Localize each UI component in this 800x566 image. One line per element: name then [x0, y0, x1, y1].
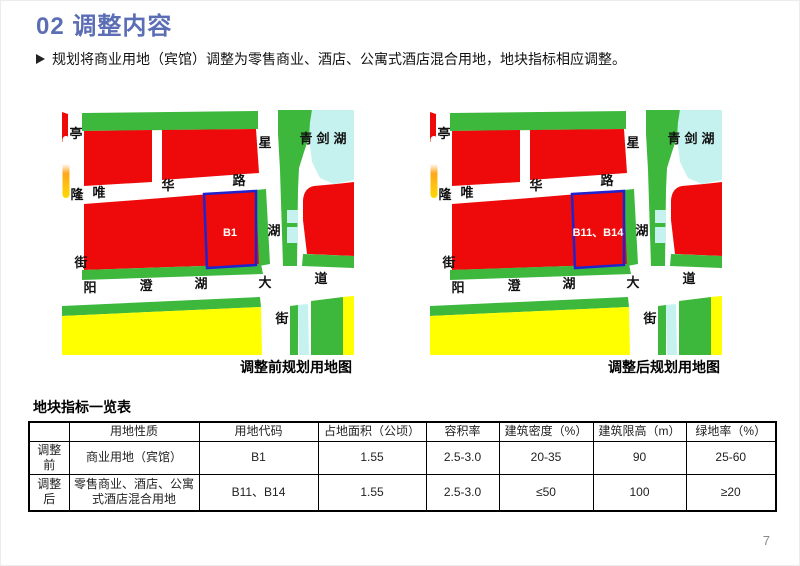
road-label: 阳 [451, 280, 464, 295]
table-cell: 90 [593, 441, 686, 474]
road-label: 隆 [438, 187, 452, 202]
row-label-cell: 调整后 [29, 474, 69, 511]
bullet-line: 规划将商业用地（宾馆）调整为零售商业、酒店、公寓式酒店混合用地，地块指标相应调整… [36, 49, 626, 69]
page-title: 02 调整内容 [36, 6, 172, 41]
lake-label: 青剑湖 [299, 131, 350, 146]
road-label: 湖 [267, 223, 280, 238]
table-cell: 25-60 [686, 441, 776, 474]
road-label: 大 [258, 275, 271, 290]
road-label: 街 [642, 311, 656, 326]
parcel-label: B1 [223, 227, 237, 239]
map-before-canvas: 亭 隆 街 唯 华 路 星 湖 街 青剑湖 阳 澄 湖 大 道 B1 [62, 110, 354, 355]
gas-station-strip [431, 136, 438, 198]
road-label: 澄 [139, 278, 153, 293]
row-label-cell: 调整前 [29, 441, 69, 474]
road-label: 路 [232, 173, 246, 188]
table-header-cell: 建筑限高（m） [593, 422, 686, 441]
table-cell: 2.5-3.0 [426, 474, 499, 511]
table-cell: 商业用地（宾馆） [69, 441, 199, 474]
map-after-canvas: 亭 隆 街 唯 华 路 星 湖 街 青剑湖 阳 澄 湖 大 道 B11、B14 [430, 110, 722, 355]
road-label: 唯 [460, 185, 473, 200]
road-label: 华 [529, 178, 542, 193]
road-label: 唯 [92, 185, 105, 200]
road-label: 路 [600, 173, 614, 188]
table-header-cell: 占地面积（公顷） [318, 422, 426, 441]
table-cell: 2.5-3.0 [426, 441, 499, 474]
table-cell: 20-35 [499, 441, 593, 474]
table-row: 调整后 零售商业、酒店、公寓式酒店混合用地 B11、B14 1.55 2.5-3… [29, 474, 776, 511]
lake-label: 青剑湖 [667, 131, 718, 146]
road-label: 华 [161, 178, 174, 193]
table-header-cell: 绿地率（%） [686, 422, 776, 441]
table-cell: 1.55 [318, 441, 426, 474]
road-label: 道 [314, 271, 327, 286]
map-before-caption: 调整前规划用地图 [62, 357, 354, 377]
road-label: 湖 [635, 223, 648, 238]
table-cell: ≥20 [686, 474, 776, 511]
table-header-cell: 建筑密度（%） [499, 422, 593, 441]
road-label: 街 [73, 255, 87, 270]
parcel-label: B11、B14 [573, 227, 625, 239]
road-label: 星 [626, 135, 639, 150]
landuse-map: 亭 隆 街 唯 华 路 星 湖 街 青剑湖 阳 澄 湖 大 道 B1 [62, 110, 354, 355]
road-label: 湖 [194, 276, 207, 291]
road-label: 街 [274, 311, 288, 326]
table-cell: 100 [593, 474, 686, 511]
table-cell: B11、B14 [199, 474, 318, 511]
road-label: 亭 [69, 126, 82, 141]
road-label: 澄 [507, 278, 521, 293]
table-cell: B1 [199, 441, 318, 474]
table-cell: 零售商业、酒店、公寓式酒店混合用地 [69, 474, 199, 511]
slide: 02 调整内容 规划将商业用地（宾馆）调整为零售商业、酒店、公寓式酒店混合用地，… [0, 0, 800, 566]
table-header-row: 用地性质 用地代码 占地面积（公顷） 容积率 建筑密度（%） 建筑限高（m） 绿… [29, 422, 776, 441]
road-label: 星 [258, 135, 271, 150]
landuse-map: 亭 隆 街 唯 华 路 星 湖 街 青剑湖 阳 澄 湖 大 道 B11、B14 [430, 110, 722, 355]
road-label: 湖 [562, 276, 575, 291]
bullet-arrow-icon [36, 54, 45, 64]
map-after-figure: 亭 隆 街 唯 华 路 星 湖 街 青剑湖 阳 澄 湖 大 道 B11、B14 … [430, 110, 722, 377]
road-label: 大 [626, 275, 639, 290]
indicator-table: 用地性质 用地代码 占地面积（公顷） 容积率 建筑密度（%） 建筑限高（m） 绿… [28, 421, 777, 512]
page-number: 7 [763, 533, 770, 548]
road-label: 街 [441, 255, 455, 270]
table-cell: ≤50 [499, 474, 593, 511]
table-row: 调整前 商业用地（宾馆） B1 1.55 2.5-3.0 20-35 90 25… [29, 441, 776, 474]
table-header-cell: 容积率 [426, 422, 499, 441]
map-after-caption: 调整后规划用地图 [430, 357, 722, 377]
table-header-cell: 用地性质 [69, 422, 199, 441]
road-label: 阳 [83, 280, 96, 295]
map-before-figure: 亭 隆 街 唯 华 路 星 湖 街 青剑湖 阳 澄 湖 大 道 B1 调整前规划… [62, 110, 354, 377]
table-header-cell [29, 422, 69, 441]
gas-station-strip [63, 136, 70, 198]
table-title: 地块指标一览表 [33, 397, 131, 417]
table-header-cell: 用地代码 [199, 422, 318, 441]
road-label: 道 [682, 271, 695, 286]
table-cell: 1.55 [318, 474, 426, 511]
road-label: 隆 [70, 187, 84, 202]
bullet-text: 规划将商业用地（宾馆）调整为零售商业、酒店、公寓式酒店混合用地，地块指标相应调整… [52, 49, 626, 69]
road-label: 亭 [437, 126, 450, 141]
